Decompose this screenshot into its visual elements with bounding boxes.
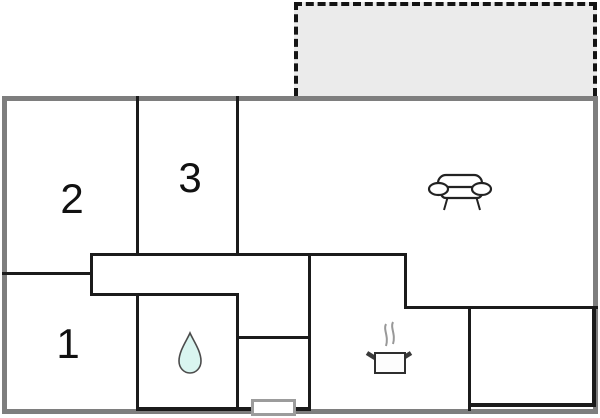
floor-plan: 1 2 3 bbox=[0, 0, 600, 418]
wall-right-room-right bbox=[592, 306, 596, 406]
wall-bathroom-left bbox=[136, 293, 139, 411]
wall-right-room-bottom bbox=[468, 403, 596, 407]
room-label-3: 3 bbox=[178, 157, 201, 199]
sofa-icon bbox=[426, 170, 494, 214]
cooking-pot-icon bbox=[363, 320, 415, 376]
wall-corridor-bottom bbox=[90, 293, 239, 296]
wall-bathroom-right bbox=[236, 293, 239, 411]
wall-room1-room2 bbox=[2, 272, 91, 275]
wall-living-bottom bbox=[404, 306, 598, 309]
wall-wc-bottom bbox=[294, 407, 311, 411]
wall-kitchen-right bbox=[468, 306, 471, 411]
wall-living-step bbox=[404, 253, 407, 309]
wall-corridor-top bbox=[90, 253, 407, 256]
window-marker bbox=[251, 399, 296, 416]
terrace-area bbox=[294, 2, 597, 96]
wall-room2-room3 bbox=[136, 96, 139, 256]
wall-room3-living bbox=[236, 96, 239, 256]
room-label-1: 1 bbox=[56, 323, 79, 365]
wall-bathroom-bottom bbox=[136, 407, 252, 411]
wall-corridor-left-cap bbox=[90, 253, 93, 296]
water-drop-icon bbox=[176, 330, 204, 376]
room-label-2: 2 bbox=[60, 178, 83, 220]
wall-wc-top bbox=[236, 336, 311, 339]
wall-kitchen-left bbox=[308, 253, 311, 411]
